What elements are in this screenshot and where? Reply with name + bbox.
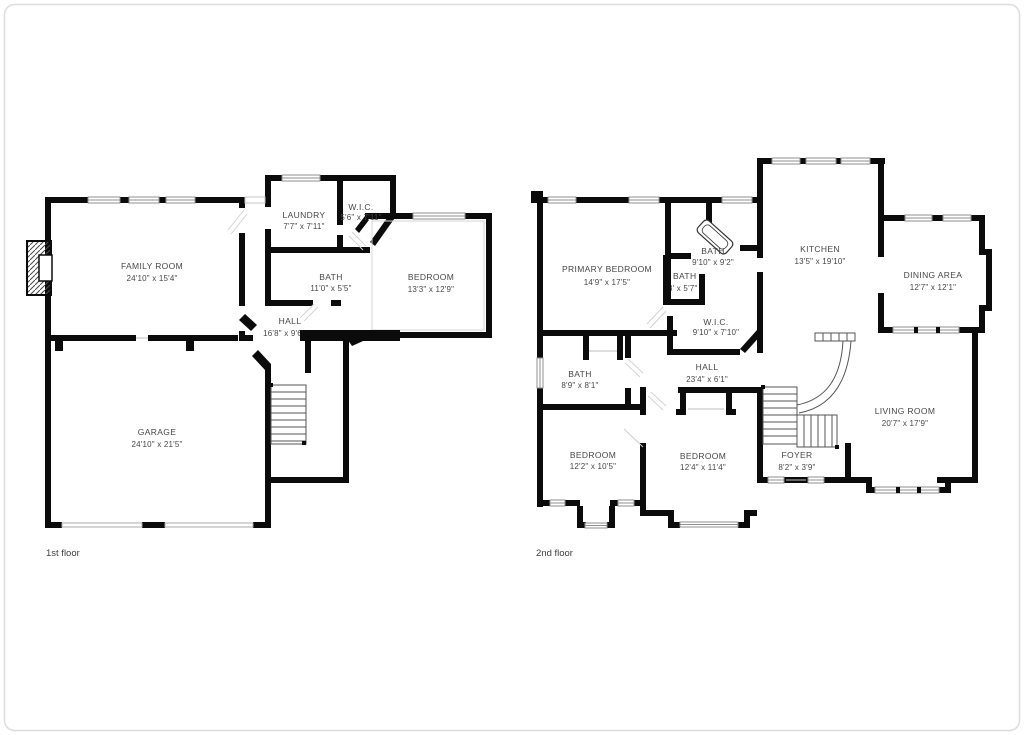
- floor-label-1st: 1st floor: [46, 548, 80, 559]
- room-label-bath-upper: BATH: [701, 246, 724, 256]
- first-floor-plan: FAMILY ROOM 24'10" x 15'4" LAUNDRY 7'7" …: [27, 175, 492, 559]
- room-dims-bath-left: 8'9" x 8'1": [561, 381, 598, 390]
- first-floor-windows: [88, 175, 465, 219]
- second-floor-windows: [537, 158, 971, 528]
- room-dims-hall: 23'4" x 6'1": [686, 375, 728, 384]
- room-label-kitchen: KITCHEN: [800, 244, 840, 254]
- room-label-hall: HALL: [279, 316, 302, 326]
- room-dims-wic: 5'6" x 7'11": [340, 213, 381, 222]
- room-label-wic: W.I.C.: [703, 317, 728, 327]
- fireplace-icon: [27, 241, 52, 295]
- room-dims-dining-area: 12'7" x 12'1": [910, 283, 956, 292]
- room-dims-bath-upper: 9'10" x 9'2": [692, 258, 734, 267]
- hall-occluding-wall: [300, 330, 400, 341]
- room-dims-family-room: 24'10" x 15'4": [126, 274, 177, 283]
- room-label-bath-left: BATH: [568, 369, 591, 379]
- room-dims-garage: 24'10" x 21'5": [131, 440, 182, 449]
- garage-door-icon: [62, 523, 142, 527]
- room-label-bedroom-left: BEDROOM: [570, 450, 616, 460]
- room-dims-hall: 16'8" x 9'6": [263, 329, 305, 338]
- room-dims-bedroom-left: 12'2" x 10'5": [570, 462, 616, 471]
- room-dims-laundry: 7'7" x 7'11": [283, 222, 324, 231]
- room-label-garage: GARAGE: [138, 427, 176, 437]
- small-bath-occluding-wall: [663, 255, 671, 305]
- room-label-bath: BATH: [319, 272, 342, 282]
- room-dims-kitchen: 13'5" x 19'10": [794, 257, 845, 266]
- room-dims-bath: 11'0" x 5'5": [310, 284, 351, 293]
- room-dims-bath-small: 3' x 5'7": [668, 284, 698, 293]
- second-floor-stairs: [761, 333, 855, 449]
- room-label-bath-small: BATH: [673, 271, 696, 281]
- room-dims-living-room: 20'7" x 17'9": [882, 419, 928, 428]
- page-border: [5, 5, 1020, 731]
- room-label-hall: HALL: [696, 362, 719, 372]
- room-label-living-room: LIVING ROOM: [875, 406, 936, 416]
- room-label-wic: W.I.C.: [348, 202, 373, 212]
- room-label-foyer: FOYER: [781, 450, 812, 460]
- garage-door-icon: [165, 523, 253, 527]
- room-dims-primary-bedroom: 14'9" x 17'5": [584, 278, 630, 287]
- second-floor-plan: PRIMARY BEDROOM 14'9" x 17'5" BATH 9'10"…: [531, 158, 992, 559]
- room-label-primary-bedroom: PRIMARY BEDROOM: [562, 264, 652, 274]
- room-label-family-room: FAMILY ROOM: [121, 261, 183, 271]
- room-label-bedroom-right: BEDROOM: [680, 451, 726, 461]
- room-dims-bedroom: 13'3" x 12'9": [408, 285, 454, 294]
- second-floor-walls: [531, 158, 992, 528]
- room-dims-wic: 9'10" x 7'10": [693, 328, 739, 337]
- room-label-bedroom: BEDROOM: [408, 272, 454, 282]
- first-floor-stairs: [269, 383, 306, 445]
- room-dims-foyer: 8'2" x 3'9": [778, 463, 815, 472]
- room-label-laundry: LAUNDRY: [283, 210, 326, 220]
- floor-label-2nd: 2nd floor: [536, 548, 573, 559]
- floorplan-page: FAMILY ROOM 24'10" x 15'4" LAUNDRY 7'7" …: [0, 0, 1024, 735]
- first-floor-walls: [45, 175, 492, 528]
- room-dims-bedroom-right: 12'4" x 11'4": [680, 463, 726, 472]
- floorplan-image: FAMILY ROOM 24'10" x 15'4" LAUNDRY 7'7" …: [0, 0, 1024, 735]
- room-label-dining-area: DINING AREA: [904, 270, 963, 280]
